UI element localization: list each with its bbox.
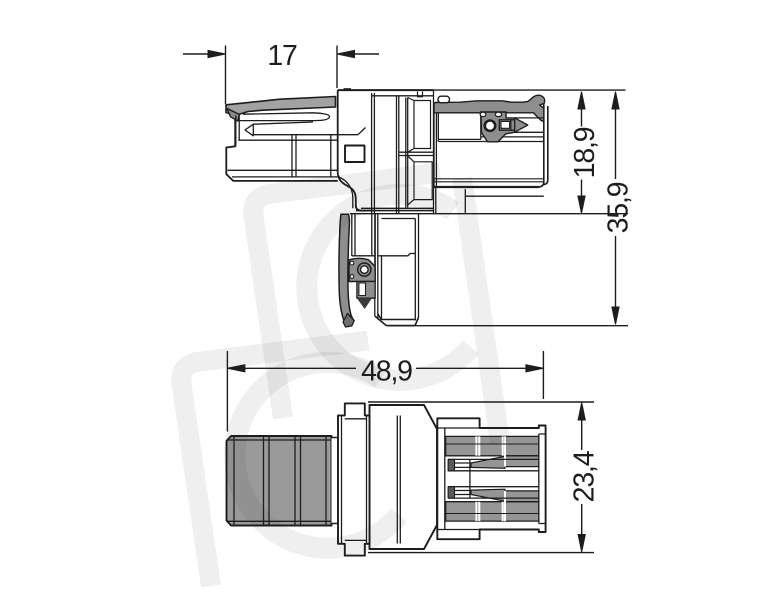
svg-text:35,9: 35,9 (603, 182, 635, 233)
svg-text:18,9: 18,9 (569, 127, 601, 178)
svg-text:17: 17 (267, 40, 297, 72)
svg-text:23,4: 23,4 (569, 450, 601, 502)
